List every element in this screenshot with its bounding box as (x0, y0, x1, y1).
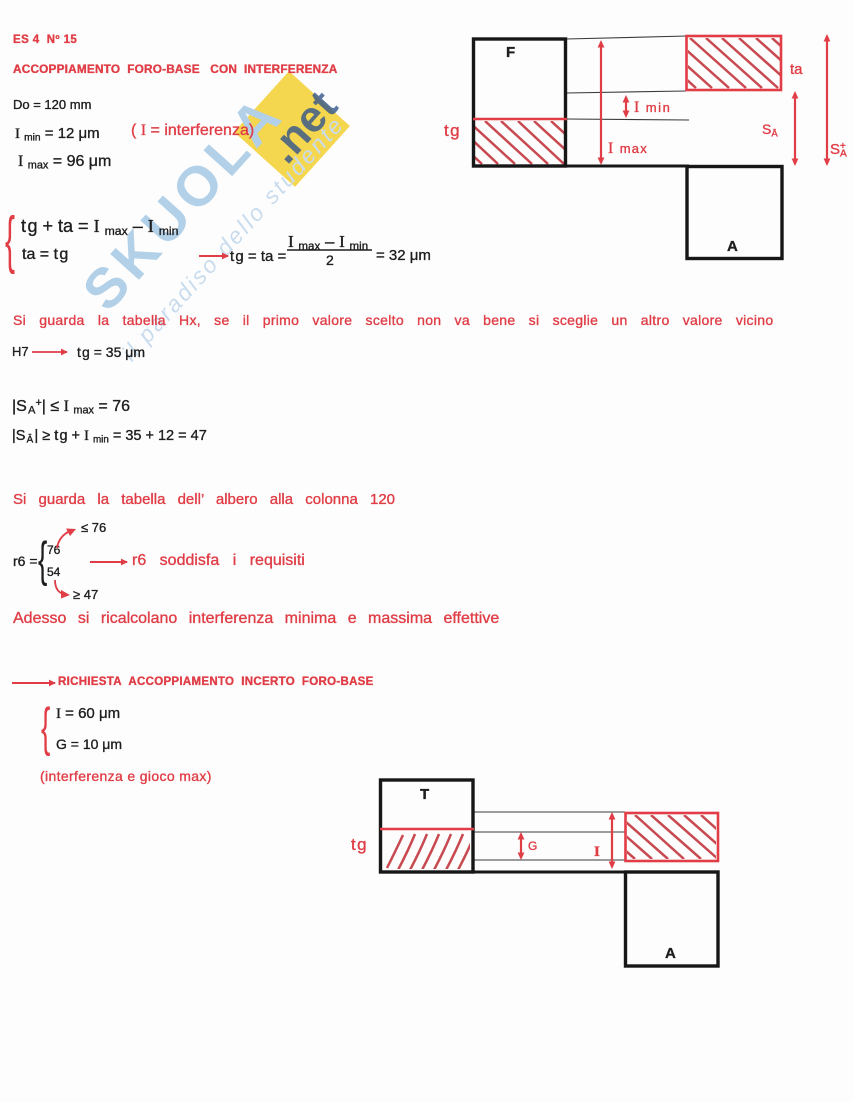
svg-text:{: { (38, 533, 47, 587)
svg-text:{: { (41, 699, 50, 758)
svg-text:{: { (5, 205, 15, 275)
